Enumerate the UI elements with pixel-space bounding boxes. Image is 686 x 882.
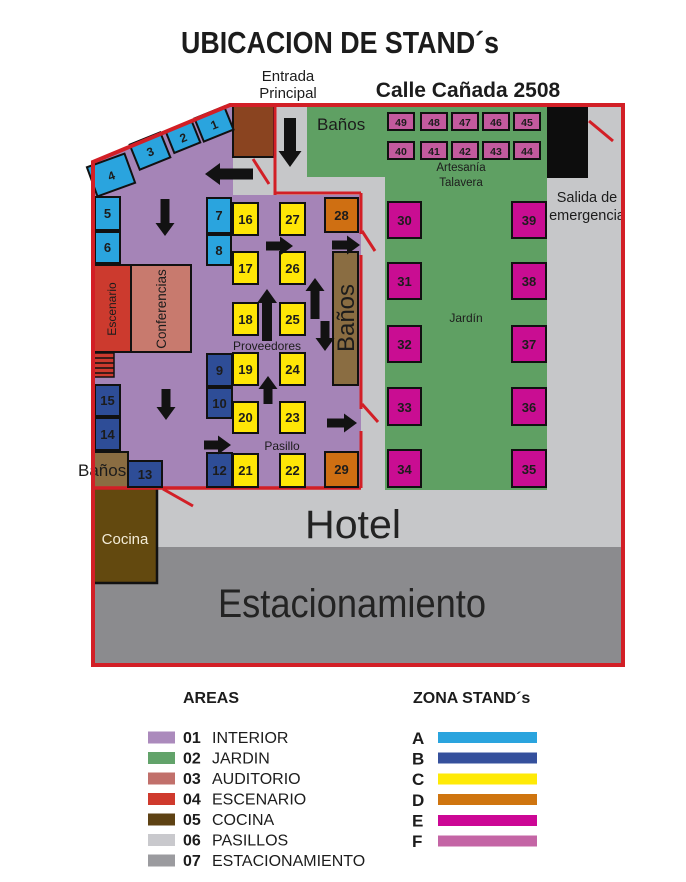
banos-right-label: Baños — [333, 284, 360, 352]
svg-text:03: 03 — [183, 771, 201, 788]
stand-26: 26 — [280, 252, 305, 284]
svg-text:18: 18 — [238, 312, 252, 327]
area-swatch-02 — [148, 752, 175, 764]
stand-30: 30 — [388, 202, 421, 238]
stand-45: 45 — [514, 113, 540, 130]
svg-text:42: 42 — [459, 146, 471, 158]
svg-text:48: 48 — [428, 117, 440, 129]
zona-bar-f — [438, 836, 537, 847]
stand-28: 28 — [325, 198, 358, 232]
area-swatch-05 — [148, 814, 175, 826]
svg-text:36: 36 — [522, 400, 536, 415]
svg-text:06: 06 — [183, 833, 201, 850]
stand-13: 13 — [128, 461, 162, 487]
svg-text:6: 6 — [104, 240, 111, 255]
svg-text:33: 33 — [397, 400, 411, 415]
svg-text:02: 02 — [183, 751, 201, 768]
stand-25: 25 — [280, 303, 305, 335]
stand-21: 21 — [233, 454, 258, 487]
svg-text:C: C — [412, 770, 424, 789]
svg-text:49: 49 — [395, 117, 407, 129]
stand-15: 15 — [95, 385, 120, 416]
stand-44: 44 — [514, 142, 540, 159]
zona-bar-a — [438, 732, 537, 743]
stand-31: 31 — [388, 263, 421, 299]
zona-bar-b — [438, 753, 537, 764]
svg-text:ESTACIONAMIENTO: ESTACIONAMIENTO — [212, 853, 365, 870]
legend-row-zona-b: B — [412, 750, 537, 769]
zona-bar-d — [438, 794, 537, 805]
stand-22: 22 — [280, 454, 305, 487]
svg-text:5: 5 — [104, 206, 111, 221]
room-entrada-principal — [233, 105, 274, 157]
svg-text:10: 10 — [212, 396, 226, 411]
stand-35: 35 — [512, 450, 546, 487]
svg-text:40: 40 — [395, 146, 407, 158]
legend-row-area-01: 01 INTERIOR — [148, 730, 288, 747]
svg-text:PASILLOS: PASILLOS — [212, 833, 288, 850]
legend-areas-title: AREAS — [183, 690, 239, 707]
stand-23: 23 — [280, 402, 305, 433]
svg-text:35: 35 — [522, 462, 536, 477]
banos-top-label: Baños — [317, 115, 365, 134]
svg-text:F: F — [412, 832, 422, 851]
svg-text:15: 15 — [100, 393, 114, 408]
stand-46: 46 — [483, 113, 509, 130]
legend-zona-stands: ZONA STAND´s A B C D E F — [412, 690, 537, 851]
hotel-label: Hotel — [305, 503, 401, 547]
legend-row-zona-f: F — [412, 832, 537, 851]
legend-row-area-03: 03 AUDITORIO — [148, 771, 301, 788]
zona-bar-e — [438, 815, 537, 826]
stand-7: 7 — [207, 198, 231, 233]
legend-row-area-07: 07 ESTACIONAMIENTO — [148, 853, 365, 870]
stand-29: 29 — [325, 452, 358, 487]
stand-8: 8 — [207, 235, 231, 265]
stand-9: 9 — [207, 354, 232, 386]
svg-text:46: 46 — [490, 117, 502, 129]
legend-areas: AREAS 01 INTERIOR 02 JARDIN 03 AUDITORIO… — [148, 690, 365, 870]
svg-text:INTERIOR: INTERIOR — [212, 730, 288, 747]
svg-text:26: 26 — [285, 261, 299, 276]
svg-text:41: 41 — [428, 146, 440, 158]
svg-text:37: 37 — [522, 337, 536, 352]
legend-row-area-06: 06 PASILLOS — [148, 833, 288, 850]
stand-40: 40 — [388, 142, 414, 159]
legend-zona-title: ZONA STAND´s — [413, 690, 530, 707]
svg-text:30: 30 — [397, 213, 411, 228]
stand-41: 41 — [421, 142, 447, 159]
svg-text:ESCENARIO: ESCENARIO — [212, 792, 306, 809]
svg-text:B: B — [412, 750, 424, 769]
stage-stairs-icon — [93, 353, 114, 377]
svg-text:24: 24 — [285, 362, 300, 377]
svg-text:19: 19 — [238, 362, 252, 377]
stand-34: 34 — [388, 450, 421, 487]
legend-row-zona-a: A — [412, 729, 537, 748]
svg-text:34: 34 — [397, 462, 412, 477]
svg-text:27: 27 — [285, 212, 299, 227]
proveedores-label: Proveedores — [233, 339, 301, 353]
jardin-label: Jardín — [449, 311, 482, 325]
area-swatch-07 — [148, 855, 175, 867]
legend-row-area-02: 02 JARDIN — [148, 751, 270, 768]
stand-48: 48 — [421, 113, 447, 130]
cocina-label: Cocina — [102, 531, 149, 548]
area-swatch-06 — [148, 834, 175, 846]
area-swatch-01 — [148, 732, 175, 744]
emergency-exit-block — [547, 105, 588, 178]
svg-text:32: 32 — [397, 337, 411, 352]
banos-left-label: Baños — [78, 461, 126, 480]
svg-text:29: 29 — [334, 462, 348, 477]
stand-6: 6 — [95, 232, 120, 263]
svg-text:39: 39 — [522, 213, 536, 228]
svg-text:31: 31 — [397, 274, 411, 289]
svg-text:44: 44 — [521, 146, 533, 158]
escenario-label: Escenario — [105, 282, 119, 336]
svg-text:20: 20 — [238, 410, 252, 425]
stand-27: 27 — [280, 203, 305, 235]
svg-text:12: 12 — [212, 463, 226, 478]
stand-16: 16 — [233, 203, 258, 235]
svg-text:COCINA: COCINA — [212, 812, 275, 829]
street-name-label: Calle Cañada 2508 — [376, 79, 561, 102]
area-swatch-03 — [148, 773, 175, 785]
legend-row-area-04: 04 ESCENARIO — [148, 792, 306, 809]
svg-text:38: 38 — [522, 274, 536, 289]
svg-text:43: 43 — [490, 146, 502, 158]
svg-text:22: 22 — [285, 463, 299, 478]
legend-row-area-05: 05 COCINA — [148, 812, 275, 829]
artesania-label-line2: Talavera — [439, 177, 483, 189]
area-swatch-04 — [148, 793, 175, 805]
svg-text:25: 25 — [285, 312, 299, 327]
stand-24: 24 — [280, 353, 305, 385]
stand-20: 20 — [233, 402, 258, 433]
zona-bar-c — [438, 774, 537, 785]
svg-text:28: 28 — [334, 208, 348, 223]
svg-text:47: 47 — [459, 117, 471, 129]
stand-43: 43 — [483, 142, 509, 159]
stand-19: 19 — [233, 353, 258, 385]
stand-33: 33 — [388, 388, 421, 425]
stand-38: 38 — [512, 263, 546, 299]
svg-text:05: 05 — [183, 812, 201, 829]
svg-text:AUDITORIO: AUDITORIO — [212, 771, 301, 788]
svg-text:E: E — [412, 812, 423, 831]
svg-text:JARDIN: JARDIN — [212, 751, 270, 768]
stand-location-floor-plan: UBICACION DE STAND´s Entrada Principal C… — [0, 0, 686, 882]
svg-text:45: 45 — [521, 117, 533, 129]
stand-32: 32 — [388, 326, 421, 362]
legend-row-zona-d: D — [412, 791, 537, 810]
stand-39: 39 — [512, 202, 546, 238]
legend-row-zona-e: E — [412, 812, 537, 831]
conferencias-label: Conferencias — [154, 269, 169, 349]
legend-row-zona-c: C — [412, 770, 537, 789]
salida-label-line1: Salida de — [557, 190, 617, 206]
svg-text:14: 14 — [100, 427, 115, 442]
stand-5: 5 — [95, 197, 120, 230]
svg-text:9: 9 — [216, 363, 223, 378]
stand-49: 49 — [388, 113, 414, 130]
stand-10: 10 — [207, 388, 232, 418]
page-title: UBICACION DE STAND´s — [181, 25, 499, 60]
main-entrance-label-line1: Entrada — [262, 68, 315, 85]
stand-18: 18 — [233, 303, 258, 335]
svg-text:01: 01 — [183, 730, 201, 747]
svg-text:D: D — [412, 791, 424, 810]
artesania-label-line1: Artesanía — [436, 162, 486, 174]
svg-text:04: 04 — [183, 792, 201, 809]
pasillo-label: Pasillo — [264, 439, 300, 453]
stand-36: 36 — [512, 388, 546, 425]
svg-text:13: 13 — [138, 467, 152, 482]
svg-text:23: 23 — [285, 410, 299, 425]
stand-17: 17 — [233, 252, 258, 284]
salida-label-line2: emergencia — [549, 208, 626, 224]
stand-14: 14 — [95, 418, 120, 450]
svg-text:17: 17 — [238, 261, 252, 276]
svg-text:21: 21 — [238, 463, 252, 478]
main-entrance-label-line2: Principal — [259, 85, 317, 102]
svg-text:16: 16 — [238, 212, 252, 227]
stand-47: 47 — [452, 113, 478, 130]
svg-text:A: A — [412, 729, 424, 748]
svg-text:7: 7 — [215, 208, 222, 223]
svg-text:8: 8 — [215, 243, 222, 258]
svg-text:07: 07 — [183, 853, 201, 870]
stand-37: 37 — [512, 326, 546, 362]
estacionamiento-label: Estacionamiento — [218, 582, 486, 626]
stand-42: 42 — [452, 142, 478, 159]
stand-12: 12 — [207, 453, 232, 487]
